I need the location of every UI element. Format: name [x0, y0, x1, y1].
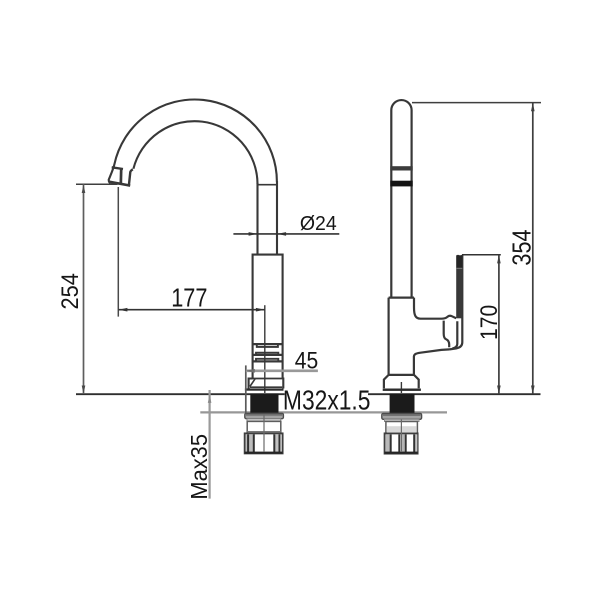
svg-text:254: 254: [56, 273, 83, 310]
svg-text:Max35: Max35: [186, 434, 212, 500]
svg-text:177: 177: [171, 284, 207, 313]
svg-text:170: 170: [476, 305, 503, 340]
svg-text:M32x1.5: M32x1.5: [283, 386, 371, 416]
svg-text:45: 45: [295, 346, 318, 374]
svg-text:Ø24: Ø24: [300, 213, 337, 236]
svg-text:354: 354: [509, 229, 537, 265]
